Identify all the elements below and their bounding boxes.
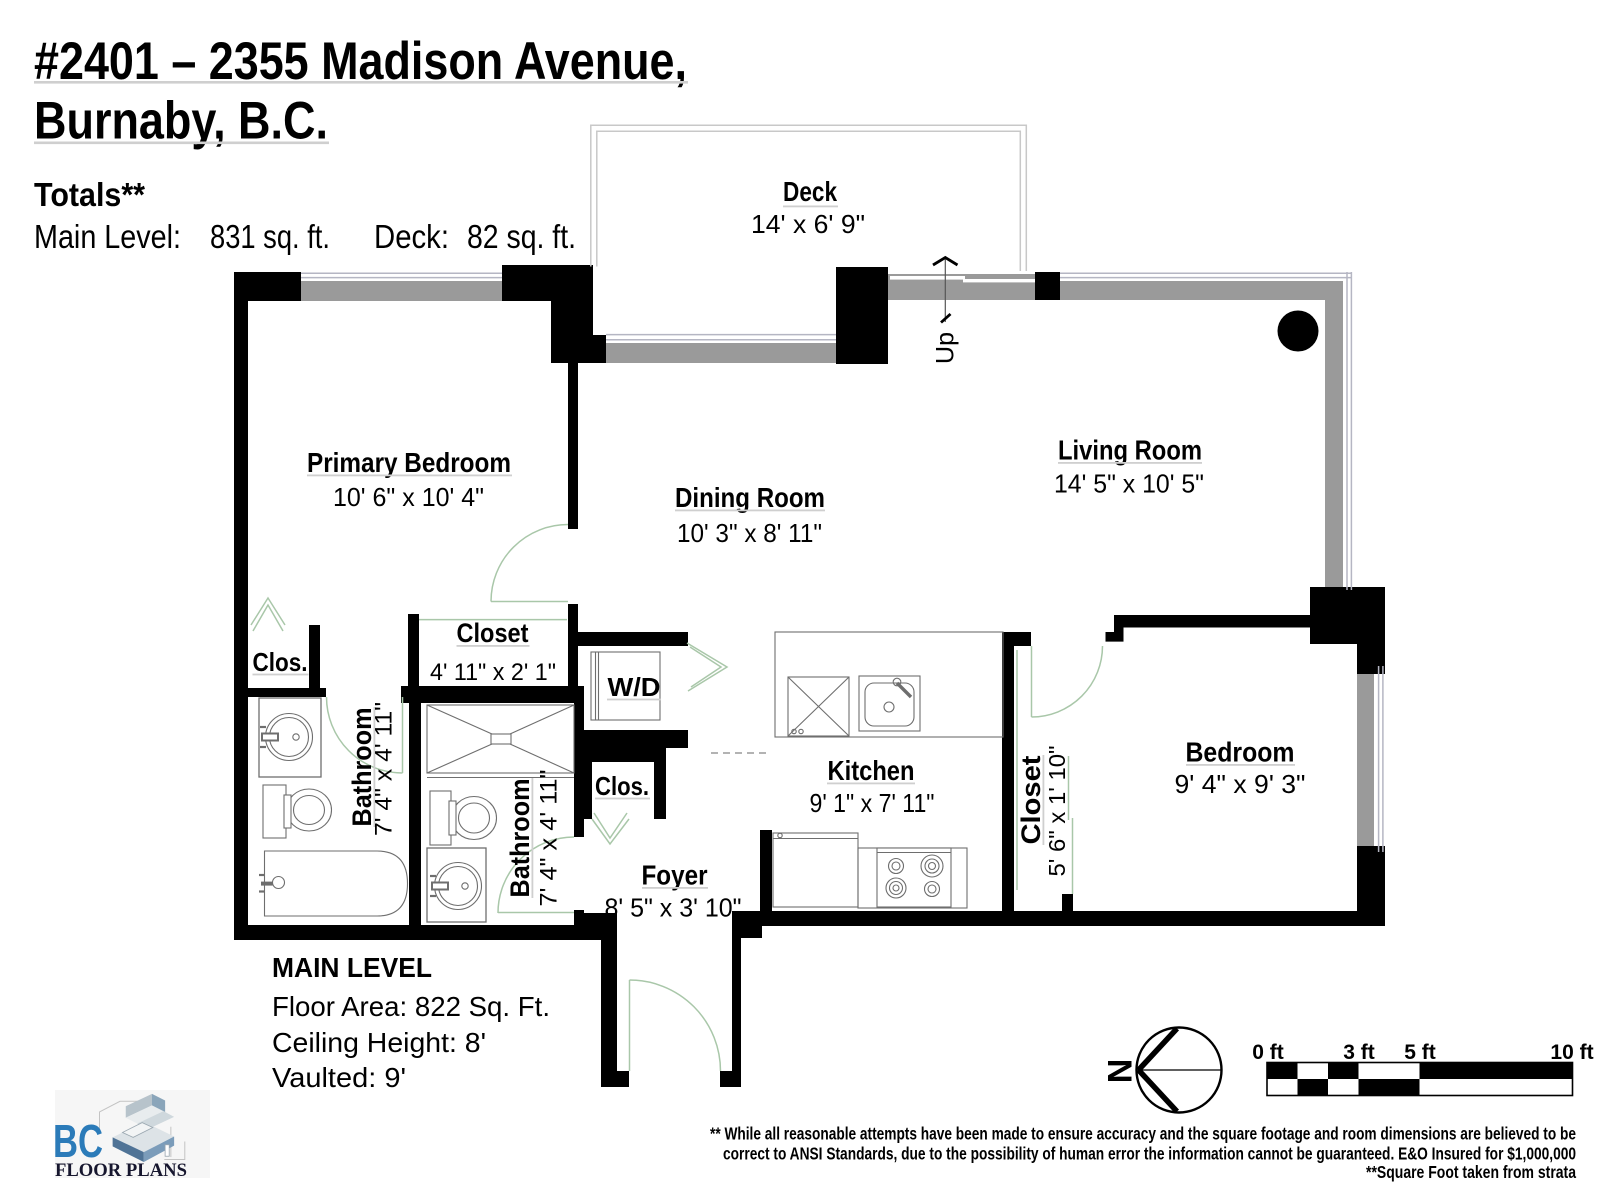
svg-text:831 sq. ft.: 831 sq. ft.: [210, 218, 330, 255]
svg-text:0 ft: 0 ft: [1252, 1041, 1284, 1064]
svg-text:14' x 6' 9": 14' x 6' 9": [751, 209, 865, 239]
svg-text:MAIN LEVEL: MAIN LEVEL: [272, 952, 432, 983]
svg-text:Vaulted: 9': Vaulted: 9': [272, 1062, 406, 1093]
svg-text:Up: Up: [932, 332, 960, 364]
svg-text:Totals**: Totals**: [34, 176, 145, 213]
svg-text:**Square Foot taken from strat: **Square Foot taken from strata: [1366, 1162, 1576, 1182]
svg-text:** While all reasonable attemp: ** While all reasonable attempts have be…: [710, 1124, 1576, 1144]
svg-text:10' 6" x 10' 4": 10' 6" x 10' 4": [333, 482, 484, 512]
svg-text:Floor Area: 822 Sq. Ft.: Floor Area: 822 Sq. Ft.: [272, 991, 550, 1022]
svg-text:correct to ANSI Standards, due: correct to ANSI Standards, due to the po…: [723, 1144, 1576, 1164]
svg-text:10 ft: 10 ft: [1550, 1041, 1593, 1064]
svg-text:W/D: W/D: [608, 672, 661, 702]
svg-text:9' 1" x 7' 11": 9' 1" x 7' 11": [810, 788, 935, 818]
svg-text:Primary Bedroom: Primary Bedroom: [307, 447, 511, 478]
svg-text:Bedroom: Bedroom: [1186, 737, 1295, 768]
svg-text:9' 4" x 9' 3": 9' 4" x 9' 3": [1175, 769, 1306, 799]
svg-text:3 ft: 3 ft: [1343, 1041, 1375, 1064]
svg-text:14' 5" x 10' 5": 14' 5" x 10' 5": [1054, 469, 1204, 499]
svg-text:Deck:: Deck:: [374, 218, 449, 255]
svg-text:Living Room: Living Room: [1058, 435, 1202, 466]
svg-text:Dining Room: Dining Room: [675, 482, 825, 513]
svg-text:Kitchen: Kitchen: [828, 755, 915, 786]
svg-text:5 ft: 5 ft: [1404, 1041, 1436, 1064]
svg-text:7' 4" x 4' 11": 7' 4" x 4' 11": [371, 702, 398, 836]
svg-text:FLOOR PLANS: FLOOR PLANS: [55, 1160, 187, 1181]
svg-text:8' 5" x 3' 10": 8' 5" x 3' 10": [605, 893, 742, 923]
svg-text:82 sq. ft.: 82 sq. ft.: [467, 218, 576, 255]
svg-text:Foyer: Foyer: [642, 860, 708, 891]
svg-text:N: N: [1102, 1059, 1140, 1084]
svg-text:Ceiling Height: 8': Ceiling Height: 8': [272, 1027, 486, 1058]
svg-text:10' 3" x 8' 11": 10' 3" x 8' 11": [677, 518, 822, 548]
svg-text:Deck: Deck: [783, 176, 837, 207]
svg-text:4' 11" x 2' 1": 4' 11" x 2' 1": [430, 659, 556, 686]
svg-text:Clos.: Clos.: [595, 771, 649, 801]
svg-text:5' 6" x 1' 10": 5' 6" x 1' 10": [1044, 746, 1070, 877]
svg-text:7' 4" x 4' 11": 7' 4" x 4' 11": [536, 770, 563, 907]
svg-text:Clos.: Clos.: [253, 647, 308, 677]
svg-text:Closet: Closet: [1016, 756, 1046, 845]
svg-text:Bathroom: Bathroom: [505, 779, 535, 898]
svg-text:Closet: Closet: [457, 618, 529, 648]
svg-text:Main Level:: Main Level:: [34, 218, 181, 255]
